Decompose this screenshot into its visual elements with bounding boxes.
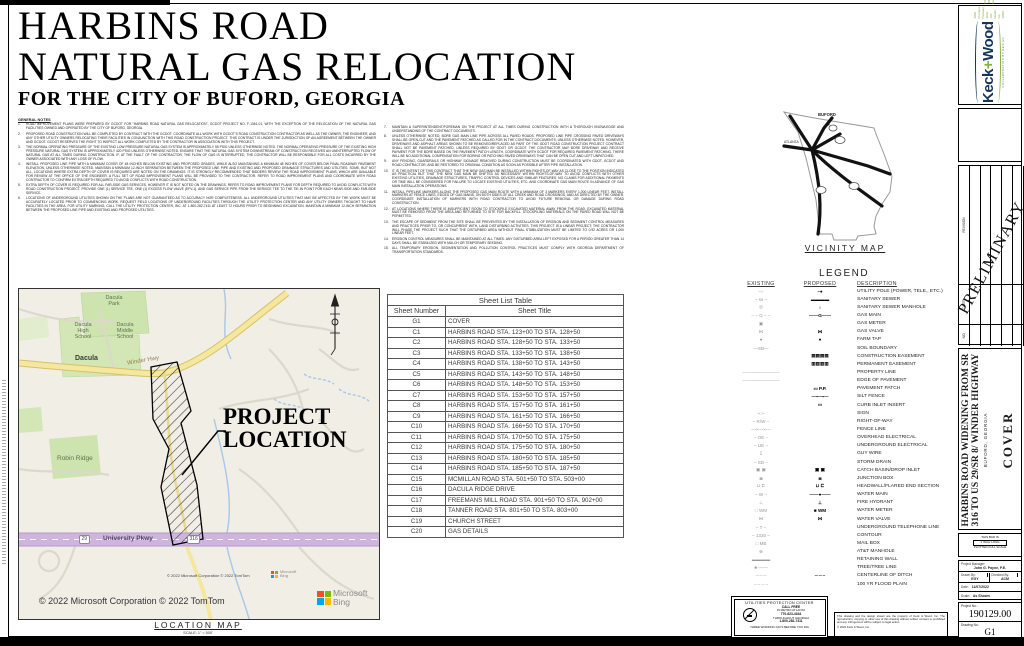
sheet-list-row: C13 HARBINS ROAD STA. 180+50 TO STA. 185… xyxy=(388,453,624,464)
title-line2: NATURAL GAS RELOCATION xyxy=(18,46,718,88)
sheet-title-cell: HARBINS ROAD STA. 143+50 TO STA. 148+50 xyxy=(446,369,624,380)
legend-row: – ss – ▬▬▬▬ SANITARY SEWER xyxy=(735,295,953,303)
scalebar-line3: PLOTTED FULL SCALE xyxy=(959,546,1021,550)
keckwood-logo: Keck+Wood COLLABORATION BY DESIGN xyxy=(975,22,1005,104)
legend-row: ▭ P.P. PAVEMENT PATCH xyxy=(735,385,953,393)
legend-description: OVERHEAD ELECTRICAL xyxy=(853,435,953,440)
legend-existing-symbol: ↧ xyxy=(735,451,787,457)
legend-description: WATER MAIN xyxy=(853,492,953,497)
project-city: BUFORD, GEORGIA xyxy=(983,413,988,468)
note-text: MAINTAIN A SUPERINTENDENT/FOREMAN ON THE… xyxy=(392,126,624,134)
legend-row: ▭ CURB INLET INSERT xyxy=(735,401,953,409)
sheet-title-cell: HARBINS ROAD STA. 166+50 TO STA. 170+50 xyxy=(446,422,624,433)
note-text: UNLESS OTHERWISE NOTED, BORE GAS MAIN LI… xyxy=(392,135,624,158)
sheet-list-row: C14 HARBINS ROAD STA. 185+50 TO STA. 187… xyxy=(388,464,624,475)
vicinity-map-caption: VICINITY MAP xyxy=(770,243,920,253)
sheet-title-cell: HARBINS ROAD STA. 138+50 TO STA. 143+50 xyxy=(446,359,624,370)
general-note: 6. LOCATIONS OF UNDERGROUND UTILITIES SH… xyxy=(18,197,376,213)
project-no-label: Project No.: xyxy=(961,604,1019,608)
legend-description: STORM DRAIN xyxy=(853,460,953,465)
sheet-number-cell: C13 xyxy=(388,453,446,464)
sheet-title-cell: TANNER ROAD STA. 801+50 TO STA. 803+00 xyxy=(446,506,624,517)
legend-proposed-symbol: ⊥ xyxy=(787,500,853,506)
no-dig-icon xyxy=(743,608,757,622)
legend-description: CONSTRUCTION EASEMENT xyxy=(853,354,953,359)
legend-proposed-symbol: –● xyxy=(787,289,853,294)
legend-row: ♣ —— TREE/TREE LINE xyxy=(735,564,953,572)
legend-existing-symbol: □ MB xyxy=(735,541,787,546)
legend-existing-symbol: –○ xyxy=(735,289,787,294)
bing-logo-text: MicrosoftBing xyxy=(333,589,367,606)
note-text: ANY FENCING, GUARDRAILS OR HIGHWAY SIGNA… xyxy=(392,160,624,168)
note-number: 12. xyxy=(384,208,392,220)
general-note: 7. MAINTAIN A SUPERINTENDENT/FOREMAN ON … xyxy=(384,126,624,134)
keckwood-address: 3090 Premiere Parkway, Suite 200 Duluth,… xyxy=(974,7,1005,19)
vicinity-label-buford: BUFORD xyxy=(818,112,836,117)
legend-existing-symbol: ———————— xyxy=(735,370,787,375)
note-text: LOCATIONS OF UNDERGROUND UTILITIES SHOWN… xyxy=(26,197,376,213)
map-label-robin-ridge: Robin Ridge xyxy=(57,455,93,462)
note-number: 13. xyxy=(384,221,392,237)
sheet-title-cell: HARBINS ROAD STA. 175+50 TO STA. 180+50 xyxy=(446,443,624,454)
legend-proposed-symbol: ⋈ xyxy=(787,329,853,335)
route-shield-29: 29 xyxy=(79,535,90,544)
legend-row: ⊥ ⊥ FIRE HYDRANT xyxy=(735,499,953,507)
location-map: Dacula Park Dacula High School Dacula Mi… xyxy=(18,288,380,620)
note-number: 1. xyxy=(18,123,26,131)
sheet-list-row: C9 HARBINS ROAD STA. 161+50 TO STA. 166+… xyxy=(388,411,624,422)
sheet-list-row: G1 COVER xyxy=(388,317,624,328)
sheet-title-cell: MCMILLAN ROAD STA. 501+50 TO STA. 503+00 xyxy=(446,474,624,485)
legend-description: UNDERGROUND ELECTRICAL xyxy=(853,443,953,448)
note-number: 8. xyxy=(384,135,392,158)
project-no-value: 190129.00 xyxy=(961,609,1019,620)
legend-description: SANITARY SEWER MANHOLE xyxy=(853,305,953,310)
titleblock-logo-box: Keck+Wood COLLABORATION BY DESIGN 3090 P… xyxy=(958,5,1022,105)
legend-row: – SD – STORM DRAIN xyxy=(735,458,953,466)
legend-row: ▤▤▤▤ CONSTRUCTION EASEMENT xyxy=(735,352,953,360)
legend-proposed-symbol: ■ WM xyxy=(787,508,853,513)
legend-proposed-symbol: ——G—— xyxy=(787,313,853,318)
legend-description: TREE/TREE LINE xyxy=(853,565,953,570)
legend-row: —▪—▪— SILT FENCE xyxy=(735,393,953,401)
keckwood-tagline: COLLABORATION BY DESIGN xyxy=(1002,22,1005,104)
legend-description: AT&T MANHOLE xyxy=(853,549,953,554)
note-text: ROAD IMPROVEMENT PLANS WERE PREPARED BY … xyxy=(26,123,376,131)
legend-existing-symbol: ⊔ ⊏ xyxy=(735,483,787,489)
legend-proposed-symbol: ◙ xyxy=(787,476,853,481)
sheet-number-cell: C3 xyxy=(388,348,446,359)
legend-title: LEGEND xyxy=(735,268,953,279)
legend-row: —×—×— FENCE LINE xyxy=(735,425,953,433)
sheet-list-row: C2 HARBINS ROAD STA. 128+50 TO STA. 133+… xyxy=(388,338,624,349)
legend-row: □ MB MAIL BOX xyxy=(735,539,953,547)
checked-by-value: ACM xyxy=(991,577,1019,581)
sheet-list-row: C3 HARBINS ROAD STA. 133+50 TO STA. 138+… xyxy=(388,348,624,359)
sheet-number-cell: C19 xyxy=(388,516,446,527)
keckwood-contact: (678) 417-4000 keckwood.com xyxy=(984,0,996,4)
legend-proposed-symbol: ○ xyxy=(787,305,853,310)
sheet-title-cell: HARBINS ROAD STA. 133+50 TO STA. 138+50 xyxy=(446,348,624,359)
legend-description: RIGHT-OF-WAY xyxy=(853,419,953,424)
legend-description: MAIL BOX xyxy=(853,541,953,546)
project-title-block: HARBINS ROAD WIDENING FROM SR 316 TO US … xyxy=(958,348,1022,530)
legend-row: – T – UNDERGROUND TELEPHONE LINE xyxy=(735,523,953,531)
scale-cell: Scale: As Shown xyxy=(959,592,1021,601)
legend-header-description: DESCRIPTION xyxy=(853,281,953,287)
legend-row: – W – ——●—— WATER MAIN xyxy=(735,491,953,499)
map-label-dacula-park: Dacula Park xyxy=(89,295,139,307)
legend-description: EDGE OF PAVEMENT xyxy=(853,378,953,383)
legend-existing-symbol: ◙ xyxy=(735,476,787,481)
legend-existing-symbol: – W – xyxy=(735,492,787,497)
sheet-list-row: C18 TANNER ROAD STA. 801+50 TO STA. 803+… xyxy=(388,506,624,517)
legend-description: FARM TAP xyxy=(853,337,953,342)
note-text: AT LOCATIONS WHERE THERE IS INSUFFICIENT… xyxy=(392,208,624,220)
utilities-protection-center-box: UTILITIES PROTECTION CENTER CALL FREE IN… xyxy=(731,596,828,638)
general-note: 15. ALL TEMPORARY EROSION, SEDIMENTATION… xyxy=(384,247,624,255)
legend-row: ⊕ AT&T MANHOLE xyxy=(735,548,953,556)
legend-proposed-symbol: ● xyxy=(787,337,853,342)
location-map-title: LOCATION MAP xyxy=(18,620,378,630)
general-note: 14. EROSION CONTROL MEASURES SHALL BE MA… xyxy=(384,238,624,246)
upc-phones: CALL FREE IN METRO ATLANTA 770-623-4344 … xyxy=(760,606,823,624)
legend-row: ◎ ○ SANITARY SEWER MANHOLE xyxy=(735,303,953,311)
legend-existing-symbol: ⋈ xyxy=(735,329,787,335)
bing-logo-text: MicrosoftBing xyxy=(280,570,296,578)
sheet-number-cell: C11 xyxy=(388,432,446,443)
drawn-by-value: EGY xyxy=(961,577,989,581)
sheet-title-cell: HARBINS ROAD STA. 161+50 TO STA. 166+50 xyxy=(446,411,624,422)
legend-existing-symbol: ▣ ▣ xyxy=(735,467,787,473)
legend-row: – 1330 – CONTOUR xyxy=(735,531,953,539)
location-map-scale: SCALE: 1" = 500' xyxy=(18,631,378,635)
general-note: 12. AT LOCATIONS WHERE THERE IS INSUFFIC… xyxy=(384,208,624,220)
sheet-number-cell: C9 xyxy=(388,411,446,422)
rev-header-revision: REVISION xyxy=(959,166,970,284)
legend: LEGEND EXISTING PROPOSED DESCRIPTION –○ … xyxy=(735,268,953,600)
route-shield-316: 316 xyxy=(187,535,200,544)
note-text: IT IS THE INTENT OF THIS CONTRACT THAT T… xyxy=(392,170,624,189)
sheet-title-cell: HARBINS ROAD STA. 153+50 TO STA. 157+50 xyxy=(446,390,624,401)
legend-description: FENCE LINE xyxy=(853,427,953,432)
legend-description: SOIL BOUNDARY xyxy=(853,346,953,351)
legend-existing-symbol: □ WM xyxy=(735,508,787,513)
sheet-title-cell: HARBINS ROAD STA. 157+50 TO STA. 161+50 xyxy=(446,401,624,412)
upc-bottom-line: THREE WORKING DAYS BEFORE YOU DIG xyxy=(737,625,823,629)
legend-description: PERMANENT EASEMENT xyxy=(853,362,953,367)
plot-stamp-microtext xyxy=(2,380,6,565)
legend-row: ———————— PROPERTY LINE xyxy=(735,368,953,376)
vicinity-label-atlanta: ATLANTA xyxy=(784,140,799,144)
drawing-sheet: HARBINS ROAD NATURAL GAS RELOCATION FOR … xyxy=(0,0,1024,646)
sheet-title-cell: HARBINS ROAD STA. 180+50 TO STA. 185+50 xyxy=(446,453,624,464)
legend-description: CENTERLINE OF DITCH xyxy=(853,573,953,578)
bottom-border-bar xyxy=(0,637,1024,646)
note-text: EXTRA DEPTH OF COVER IS REQUIRED FOR ALL… xyxy=(26,184,376,196)
scalebar-graphic: 1 INCH LONG xyxy=(973,540,1006,546)
note-number: 6. xyxy=(18,197,26,213)
legend-existing-symbol: – OE – xyxy=(735,435,787,440)
legend-proposed-symbol: ▭ xyxy=(787,402,853,408)
general-note: 11. INSTALL PIPELINE MARKERS ALONG THE P… xyxy=(384,191,624,207)
sheet-number-cell: C2 xyxy=(388,338,446,349)
vicinity-map: BUFORD ATLANTA xyxy=(770,88,955,266)
legend-proposed-symbol: —▪—▪— xyxy=(787,394,853,399)
general-note: 13. THE ESCAPE OF SEDIMENT FROM THE SITE… xyxy=(384,221,624,237)
legend-description: PAVEMENT PATCH xyxy=(853,386,953,391)
legend-description: GAS VALVE xyxy=(853,329,953,334)
legend-description: GUY WIRE xyxy=(853,451,953,456)
sheet-list-row: C17 FREEMANS MILL ROAD STA. 901+50 TO ST… xyxy=(388,495,624,506)
sheet-number-cell: C20 xyxy=(388,527,446,538)
sheet-title-cell: DACULA RIDGE DRIVE xyxy=(446,485,624,496)
revision-block: NO. DATE REVISION xyxy=(958,165,1022,345)
sheet-title-cell: HARBINS ROAD STA. 185+50 TO STA. 187+50 xyxy=(446,464,624,475)
note-number: 2. xyxy=(18,133,26,145)
sheet-number-cell: C4 xyxy=(388,359,446,370)
legend-row: – – – – 100 YR FLOOD PLAIN xyxy=(735,580,953,588)
legend-description: SIGN xyxy=(853,411,953,416)
legend-row: – – G – – ——G—— GAS MAIN xyxy=(735,311,953,319)
north-arrow xyxy=(330,295,340,355)
legend-description: CATCH BASIN/DROP INLET xyxy=(853,468,953,473)
note-text: THE NORMAL OPERATING PRESSURE OF THE EXI… xyxy=(26,146,376,162)
project-manager-cell: Project Manager: John G. Payne, P.E. xyxy=(959,561,1021,572)
legend-existing-symbol: ▬▬▬▬ xyxy=(735,557,787,562)
legend-row: ⋈ ⋈ WATER VALVE xyxy=(735,515,953,523)
drawing-info-block: Project Manager: John G. Payne, P.E. Dra… xyxy=(958,560,1022,600)
legend-row: ⊔ ⊏ ⊔ ⊏ HEADWALL/FLARED END SECTION xyxy=(735,482,953,490)
sheet-title-cell: COVER xyxy=(446,317,624,328)
sheet-number-cell: C12 xyxy=(388,443,446,454)
sheet-title-cell: HARBINS ROAD STA. 123+00 TO STA. 128+50 xyxy=(446,327,624,338)
legend-proposed-symbol: ⊔ ⊏ xyxy=(787,483,853,489)
legend-row: ▥▥▥▥ PERMANENT EASEMENT xyxy=(735,360,953,368)
legend-row: – OE – OVERHEAD ELECTRICAL xyxy=(735,434,953,442)
legend-proposed-symbol: ▬▬▬▬ xyxy=(787,297,853,302)
upc-phone-ga: 1-800-282-7411 xyxy=(760,620,823,624)
note-number: 9. xyxy=(384,160,392,168)
sheet-list-row: C6 HARBINS ROAD STA. 148+50 TO STA. 153+… xyxy=(388,380,624,391)
sheet-list-row: C10 HARBINS ROAD STA. 166+50 TO STA. 170… xyxy=(388,422,624,433)
drawing-no-value: G1 xyxy=(961,627,1019,637)
sheet-number-cell: G1 xyxy=(388,317,446,328)
date-value: 11/07/2022 xyxy=(972,585,989,589)
general-note: 9. ANY FENCING, GUARDRAILS OR HIGHWAY SI… xyxy=(384,160,624,168)
scale-value: As Shown xyxy=(973,594,990,598)
sheet-list-row: C4 HARBINS ROAD STA. 138+50 TO STA. 143+… xyxy=(388,359,624,370)
seal-box-empty xyxy=(958,108,1022,162)
note-text: PROPOSED ROAD CONSTRUCTION WILL BE COMPL… xyxy=(26,133,376,145)
legend-proposed-symbol: ⋈ xyxy=(787,516,853,522)
legend-existing-symbol: ♣ —— xyxy=(735,565,787,570)
legend-description: UNDERGROUND TELEPHONE LINE xyxy=(853,525,953,530)
note-number: 5. xyxy=(18,184,26,196)
map-label-dacula-middle-school: Dacula Middle School xyxy=(105,322,145,340)
legend-existing-symbol: ◎ xyxy=(735,304,787,310)
legend-description: UTILITY POLE (POWER, TELE., ETC.) xyxy=(853,289,953,294)
note-number: 10. xyxy=(384,170,392,189)
sheet-number-cell: C8 xyxy=(388,401,446,412)
legend-row: –□– SIGN xyxy=(735,409,953,417)
sheet-title-cell: FREEMANS MILL ROAD STA. 901+50 TO STA. 9… xyxy=(446,495,624,506)
general-note: 3. THE NORMAL OPERATING PRESSURE OF THE … xyxy=(18,146,376,162)
legend-existing-symbol: —×—×— xyxy=(735,427,787,432)
legend-row: ▣ ▣ ▣ ▣ CATCH BASIN/DROP INLET xyxy=(735,466,953,474)
scale-bar-box: THIS BAR IS 1 INCH LONG PLOTTED FULL SCA… xyxy=(958,533,1022,557)
note-text: EROSION CONTROL MEASURES SHALL BE MAINTA… xyxy=(392,238,624,246)
microsoft-squares-icon xyxy=(317,591,331,605)
legend-description: HEADWALL/FLARED END SECTION xyxy=(853,484,953,489)
sheet-list-row: C19 CHURCH STREET xyxy=(388,516,624,527)
legend-description: FIRE HYDRANT xyxy=(853,500,953,505)
legend-existing-symbol: –·–·– xyxy=(735,573,787,578)
map-attribution-large: © 2022 Microsoft Corporation © 2022 TomT… xyxy=(39,596,225,606)
legend-description: SILT FENCE xyxy=(853,394,953,399)
legend-headers: EXISTING PROPOSED DESCRIPTION xyxy=(735,281,953,287)
map-attribution-small: © 2022 Microsoft Corporation © 2022 TomT… xyxy=(167,573,250,578)
legend-row: – R/W – RIGHT-OF-WAY xyxy=(735,417,953,425)
sheet-list-row: C15 MCMILLAN ROAD STA. 501+50 TO STA. 50… xyxy=(388,474,624,485)
sheet-list-row: C8 HARBINS ROAD STA. 157+50 TO STA. 161+… xyxy=(388,401,624,412)
sheet-number-cell: C15 xyxy=(388,474,446,485)
legend-row: ▣ GAS METER xyxy=(735,320,953,328)
legend-existing-symbol: – 1330 – xyxy=(735,533,787,538)
map-label-dacula-high-school: Dacula High School xyxy=(63,322,103,340)
legend-header-existing: EXISTING xyxy=(735,281,787,287)
legend-row: —SB— SOIL BOUNDARY xyxy=(735,344,953,352)
sheet-title-cell: CHURCH STREET xyxy=(446,516,624,527)
title-line3: FOR THE CITY OF BUFORD, GEORGIA xyxy=(18,88,718,110)
legend-existing-symbol: – UE – xyxy=(735,443,787,448)
legend-existing-symbol: —SB— xyxy=(735,346,787,351)
col-header-sheet-number: Sheet Number xyxy=(388,306,446,317)
bing-logo-small: MicrosoftBing xyxy=(271,570,296,578)
legend-proposed-symbol: ——●—— xyxy=(787,492,853,497)
rev-header-date: DATE xyxy=(959,284,970,324)
legend-row: □ WM ■ WM WATER METER xyxy=(735,507,953,515)
legend-proposed-symbol: ▥▥▥▥ xyxy=(787,361,853,367)
sheet-list-row: C11 HARBINS ROAD STA. 170+50 TO STA. 175… xyxy=(388,432,624,443)
note-text: INSTALL PIPELINE MARKERS ALONG THE PROPO… xyxy=(392,191,624,207)
general-note: 8. UNLESS OTHERWISE NOTED, BORE GAS MAIN… xyxy=(384,135,624,158)
note-number: 14. xyxy=(384,238,392,246)
sheet-number-cell: C5 xyxy=(388,369,446,380)
general-note: 4. INSTALL PROPOSED LINE PIPE WITH A MIN… xyxy=(18,163,376,182)
sheet-number-cell: C10 xyxy=(388,422,446,433)
location-map-caption: LOCATION MAP SCALE: 1" = 500' xyxy=(18,620,378,635)
sheet-number-cell: C16 xyxy=(388,485,446,496)
sheet-number-cell: C1 xyxy=(388,327,446,338)
note-number: 4. xyxy=(18,163,26,182)
upc-title: UTILITIES PROTECTION CENTER xyxy=(737,601,823,605)
date-cell: Date: 11/07/2022 xyxy=(959,583,1021,592)
general-notes-col1: GENERAL NOTES 1. ROAD IMPROVEMENT PLANS … xyxy=(18,118,376,214)
checked-by-cell: Checked By: ACM xyxy=(991,573,1019,582)
legend-existing-symbol: – R/W – xyxy=(735,419,787,424)
note-text: INSTALL PROPOSED LINE PIPE WITH A MINIMU… xyxy=(26,163,376,182)
upc-inner-border: UTILITIES PROTECTION CENTER CALL FREE IN… xyxy=(734,599,826,636)
legend-row: ↧ GUY WIRE xyxy=(735,450,953,458)
legend-description: RETAINING WALL xyxy=(853,557,953,562)
legend-row: –○ –● UTILITY POLE (POWER, TELE., ETC.) xyxy=(735,287,953,295)
sheet-title-cell: GAS DETAILS xyxy=(446,527,624,538)
legend-proposed-symbol: ▣ ▣ xyxy=(787,467,853,473)
legend-row: ▬▬▬▬ RETAINING WALL xyxy=(735,556,953,564)
sheet-number-cell: C14 xyxy=(388,464,446,475)
sheet-list-table: Sheet List Table Sheet Number Sheet Titl… xyxy=(387,294,624,538)
legend-description: CURB INLET INSERT xyxy=(853,403,953,408)
microsoft-squares-icon xyxy=(271,571,278,578)
legend-existing-symbol: – ss – xyxy=(735,297,787,302)
legend-existing-symbol: ● xyxy=(735,337,787,342)
sheet-list-row: C7 HARBINS ROAD STA. 153+50 TO STA. 157+… xyxy=(388,390,624,401)
legend-existing-symbol: – – – – xyxy=(735,582,787,587)
sheet-number-cell: C7 xyxy=(388,390,446,401)
legend-proposed-symbol: ▭ P.P. xyxy=(787,386,853,392)
legend-description: 100 YR FLOOD PLAIN xyxy=(853,582,953,587)
sheet-title-cell: HARBINS ROAD STA. 148+50 TO STA. 153+50 xyxy=(446,380,624,391)
map-label-university-pkwy: University Pkwy xyxy=(103,535,153,542)
sheet-name: COVER xyxy=(1000,412,1016,469)
legend-header-proposed: PROPOSED xyxy=(787,281,853,287)
legend-description: GAS METER xyxy=(853,321,953,326)
legend-row: ⋈ ⋈ GAS VALVE xyxy=(735,328,953,336)
col-header-sheet-title: Sheet Title xyxy=(446,306,624,317)
general-note: 5. EXTRA DEPTH OF COVER IS REQUIRED FOR … xyxy=(18,184,376,196)
project-location-callout: PROJECT LOCATION xyxy=(223,406,347,451)
legend-description: PROPERTY LINE xyxy=(853,370,953,375)
general-notes-col2: 7. MAINTAIN A SUPERINTENDENT/FOREMAN ON … xyxy=(384,126,624,257)
legend-existing-symbol: ⊕ xyxy=(735,549,787,555)
copyright-line2: © 2022 Keck & Wood, Inc. xyxy=(837,626,945,629)
drawn-by-cell: Drawn By: EGY xyxy=(961,573,990,582)
sheet-title: HARBINS ROAD NATURAL GAS RELOCATION FOR … xyxy=(18,6,718,110)
legend-proposed-symbol: –·–·– xyxy=(787,573,853,578)
legend-existing-symbol: – – G – – xyxy=(735,313,787,318)
sheet-number-cell: C18 xyxy=(388,506,446,517)
note-text: ALL TEMPORARY EROSION, SEDIMENTATION AND… xyxy=(392,247,624,255)
legend-proposed-symbol: ▤▤▤▤ xyxy=(787,353,853,359)
legend-description: CONTOUR xyxy=(853,533,953,538)
sheet-list-row: C1 HARBINS ROAD STA. 123+00 TO STA. 128+… xyxy=(388,327,624,338)
copyright-text: This drawing and the design shown are th… xyxy=(837,615,945,625)
project-corridor-hatch xyxy=(151,362,203,545)
legend-existing-symbol: ▣ xyxy=(735,321,787,327)
sheet-list-row: C5 HARBINS ROAD STA. 143+50 TO STA. 148+… xyxy=(388,369,624,380)
legend-existing-symbol: ⋈ xyxy=(735,516,787,522)
title-line1: HARBINS ROAD xyxy=(18,6,718,46)
legend-description: WATER VALVE xyxy=(853,517,953,522)
legend-row: –·–·– –·–·– CENTERLINE OF DITCH xyxy=(735,572,953,580)
note-number: 15. xyxy=(384,247,392,255)
sheet-list-row: C16 DACULA RIDGE DRIVE xyxy=(388,485,624,496)
note-number: 11. xyxy=(384,191,392,207)
legend-row: ◙ ◙ JUNCTION BOX xyxy=(735,474,953,482)
bing-logo-large: MicrosoftBing xyxy=(317,589,367,606)
legend-description: SANITARY SEWER xyxy=(853,297,953,302)
sheet-list-row: C20 GAS DETAILS xyxy=(388,527,624,538)
legend-description: GAS MAIN xyxy=(853,313,953,318)
project-manager-name: John G. Payne, P.E. xyxy=(961,566,1019,570)
legend-row: ● ● FARM TAP xyxy=(735,336,953,344)
map-label-dacula: Dacula xyxy=(75,355,98,362)
general-note: 1. ROAD IMPROVEMENT PLANS WERE PREPARED … xyxy=(18,123,376,131)
general-note: 10. IT IS THE INTENT OF THIS CONTRACT TH… xyxy=(384,170,624,189)
sheet-title-cell: HARBINS ROAD STA. 128+50 TO STA. 133+50 xyxy=(446,338,624,349)
note-number: 3. xyxy=(18,146,26,162)
